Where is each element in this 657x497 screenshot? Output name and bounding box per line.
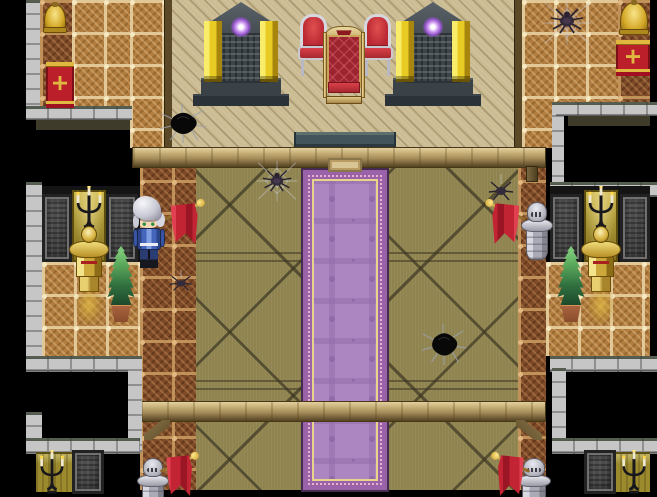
entity-layer bbox=[0, 0, 657, 497]
floor-hole-center bbox=[420, 322, 468, 366]
red-flag-bottom-left bbox=[160, 448, 200, 497]
beam-post-right bbox=[526, 166, 538, 182]
gold-statue-reflection-left bbox=[76, 292, 102, 324]
candelabra-bottom-right bbox=[618, 450, 650, 496]
red-flag-bottom-right bbox=[490, 448, 530, 497]
gold-bell-top-left bbox=[44, 4, 66, 32]
floor-hole-top-left bbox=[158, 102, 208, 144]
beam-brace-bottom-right bbox=[516, 420, 542, 440]
shrine-monument-right bbox=[380, 2, 486, 106]
gold-bell-top-right bbox=[620, 2, 648, 34]
spider-mid-left bbox=[261, 168, 293, 192]
shrine-monument-left bbox=[188, 2, 294, 106]
potted-plant-right bbox=[553, 246, 589, 322]
gold-statue-reflection-right bbox=[588, 292, 614, 324]
royal-throne bbox=[322, 26, 366, 104]
carved-panel-bottom-right bbox=[584, 450, 616, 494]
red-flag-mid-right bbox=[484, 196, 526, 248]
spider-top-right bbox=[549, 6, 585, 34]
carved-panel-mid-right-2 bbox=[620, 194, 650, 262]
red-banner-top-left bbox=[46, 62, 74, 108]
side-chair-right bbox=[362, 14, 393, 76]
red-flag-mid-left bbox=[164, 196, 206, 248]
candelabra-bottom-left bbox=[36, 450, 68, 496]
carved-panel-bottom-left bbox=[72, 450, 104, 494]
beam-brace-bottom-left bbox=[144, 420, 170, 440]
game-viewport[interactable] bbox=[0, 0, 657, 497]
player-character[interactable] bbox=[132, 196, 166, 268]
red-banner-top-right bbox=[616, 40, 650, 76]
spider-small-left bbox=[168, 270, 194, 292]
carved-panel-mid-left-1 bbox=[42, 194, 72, 262]
